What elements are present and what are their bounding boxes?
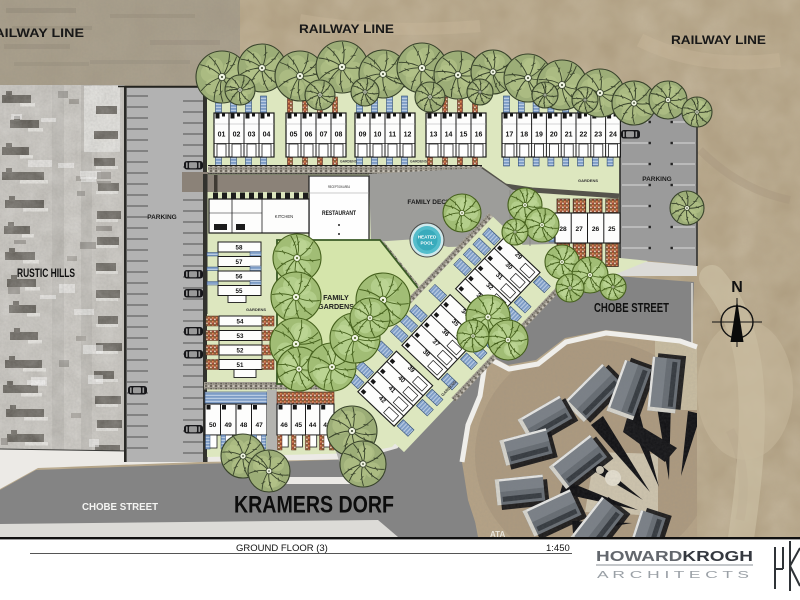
svg-text:15: 15 — [460, 132, 468, 139]
svg-text:N: N — [731, 279, 743, 296]
svg-text:25: 25 — [608, 226, 616, 233]
svg-text:28: 28 — [559, 226, 567, 233]
svg-text:23: 23 — [594, 132, 602, 139]
svg-text:GARDENS: GARDENS — [578, 178, 598, 183]
svg-text:03: 03 — [248, 132, 256, 139]
svg-text:KRAMERS DORF: KRAMERS DORF — [234, 492, 394, 519]
svg-text:GARDENS: GARDENS — [318, 302, 354, 311]
svg-text:GARDENS: GARDENS — [410, 160, 428, 164]
svg-text:07: 07 — [320, 132, 328, 139]
svg-text:GARDENS: GARDENS — [246, 307, 266, 312]
svg-text:48: 48 — [240, 422, 248, 429]
svg-text:53: 53 — [237, 333, 244, 340]
svg-text:50: 50 — [209, 422, 217, 429]
svg-text:01: 01 — [218, 132, 226, 139]
svg-text:RAILWAY LINE: RAILWAY LINE — [299, 22, 394, 36]
svg-text:52: 52 — [237, 348, 244, 355]
svg-text:55: 55 — [236, 288, 243, 295]
svg-text:47: 47 — [256, 422, 264, 429]
svg-text:22: 22 — [580, 132, 588, 139]
svg-text:27: 27 — [576, 226, 584, 233]
svg-text:RESTAURANT: RESTAURANT — [322, 210, 356, 217]
svg-text:54: 54 — [237, 319, 244, 326]
svg-text:26: 26 — [592, 226, 600, 233]
svg-text:10: 10 — [374, 132, 382, 139]
svg-text:13: 13 — [430, 132, 438, 139]
svg-text:06: 06 — [305, 132, 313, 139]
svg-text:51: 51 — [237, 362, 244, 369]
svg-text:57: 57 — [236, 259, 243, 266]
svg-text:46: 46 — [280, 422, 288, 429]
svg-text:56: 56 — [236, 274, 243, 281]
svg-text:FAMILY: FAMILY — [323, 293, 349, 302]
svg-text:CHOBE STREET: CHOBE STREET — [82, 501, 159, 513]
svg-text:KITCHEN: KITCHEN — [275, 214, 293, 219]
svg-text:A R C H I T E C T S: A R C H I T E C T S — [597, 570, 750, 581]
svg-text:09: 09 — [359, 132, 367, 139]
svg-text:24: 24 — [609, 132, 617, 139]
svg-text:18: 18 — [520, 132, 528, 139]
svg-text:19: 19 — [535, 132, 543, 139]
svg-text:20: 20 — [550, 132, 558, 139]
svg-text:RECEPTION AREA: RECEPTION AREA — [328, 185, 350, 189]
svg-text:GROUND FLOOR (3): GROUND FLOOR (3) — [236, 543, 328, 554]
svg-text:44: 44 — [309, 422, 317, 429]
svg-text:HOWARDKROGH: HOWARDKROGH — [596, 549, 753, 565]
svg-text:POOL: POOL — [420, 241, 433, 246]
svg-text:17: 17 — [506, 132, 514, 139]
svg-text:GARDENS: GARDENS — [340, 160, 358, 164]
svg-text:11: 11 — [389, 132, 397, 139]
svg-text:RUSTIC HILLS: RUSTIC HILLS — [17, 268, 75, 280]
svg-text:05: 05 — [290, 132, 298, 139]
svg-text:PARKING: PARKING — [642, 176, 672, 183]
svg-text:02: 02 — [233, 132, 241, 139]
svg-text:12: 12 — [404, 132, 412, 139]
svg-text:RAILWAY LINE: RAILWAY LINE — [671, 33, 766, 47]
svg-text:08: 08 — [335, 132, 343, 139]
svg-text:21: 21 — [565, 132, 573, 139]
svg-text:58: 58 — [236, 245, 243, 252]
svg-text:CHOBE STREET: CHOBE STREET — [594, 300, 669, 315]
svg-text:14: 14 — [445, 132, 453, 139]
svg-text:45: 45 — [295, 422, 303, 429]
svg-text:04: 04 — [263, 132, 271, 139]
svg-text:HEATED: HEATED — [418, 235, 437, 240]
svg-text:1:450: 1:450 — [546, 543, 570, 554]
svg-text:RAILWAY LINE: RAILWAY LINE — [0, 26, 84, 40]
svg-text:PARKING: PARKING — [147, 214, 177, 221]
svg-text:16: 16 — [475, 132, 483, 139]
svg-text:49: 49 — [225, 422, 233, 429]
